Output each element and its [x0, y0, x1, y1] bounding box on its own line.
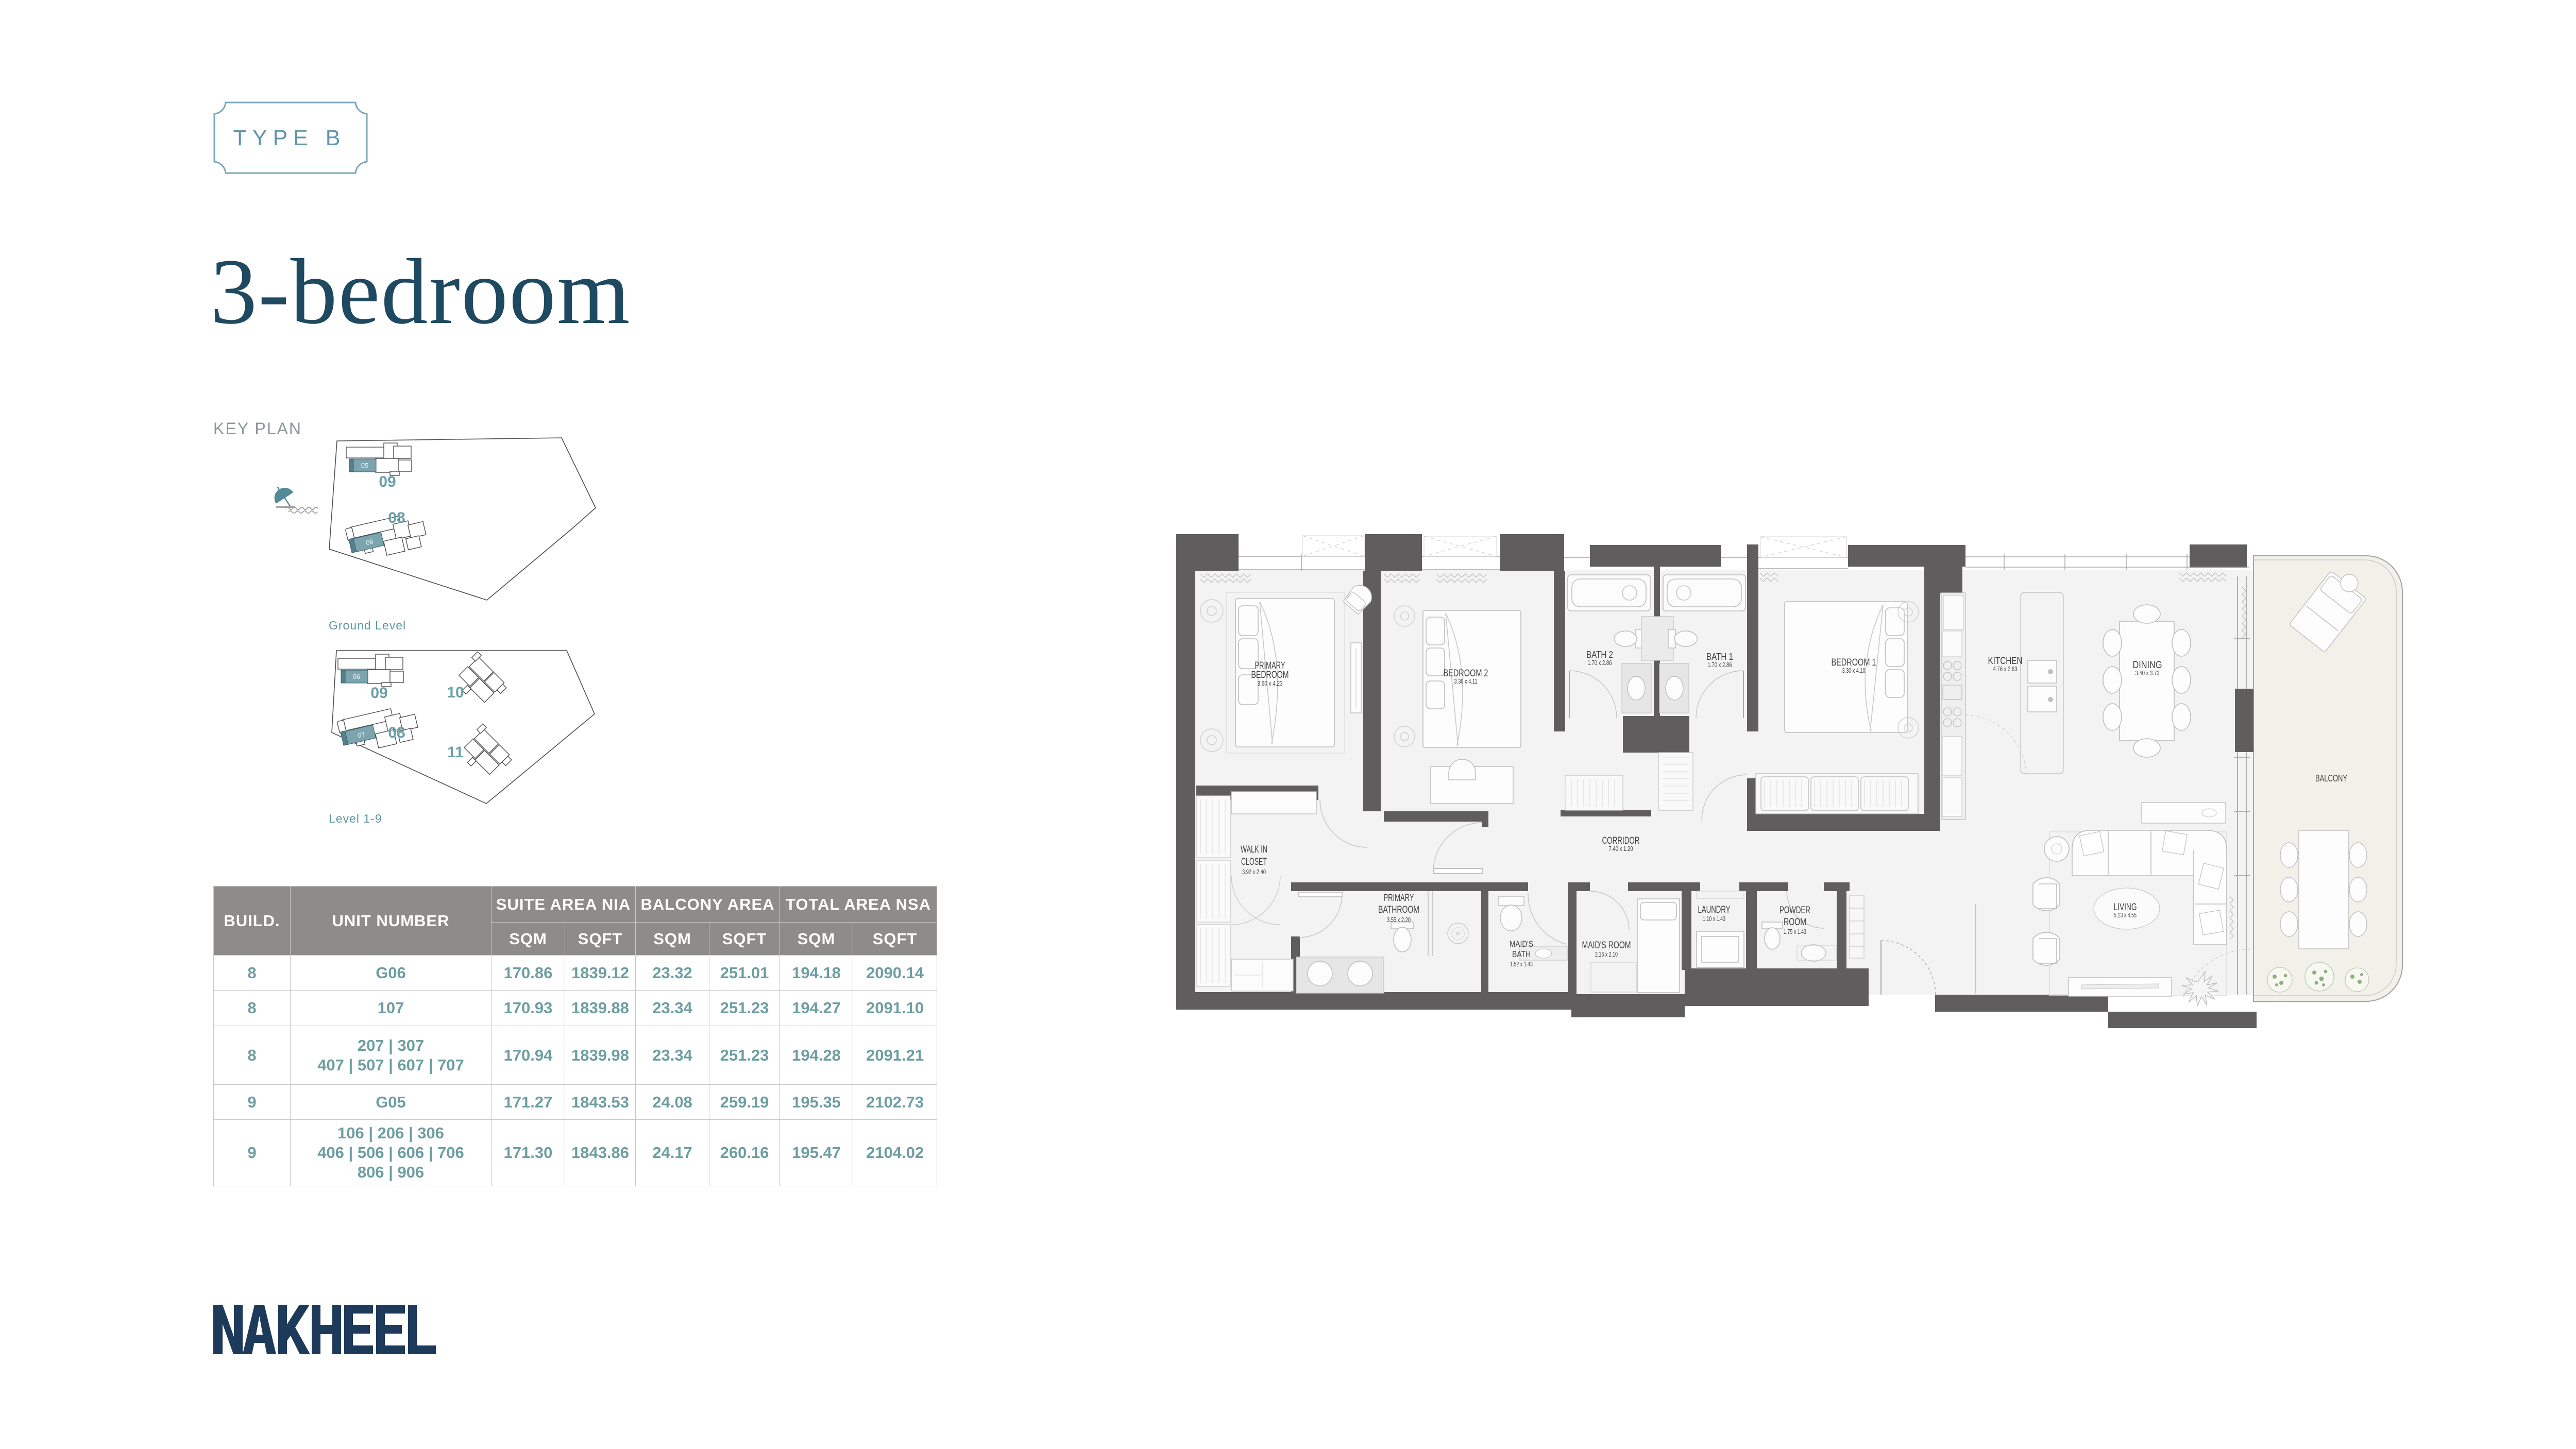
svg-text:1.10 x 1.43: 1.10 x 1.43 [1703, 915, 1725, 923]
svg-text:LIVING: LIVING [2114, 902, 2137, 913]
svg-text:BATHROOM: BATHROOM [1378, 905, 1419, 915]
svg-text:4.76 x 2.63: 4.76 x 2.63 [1993, 666, 2018, 673]
svg-text:1.70 x 2.86: 1.70 x 2.86 [1588, 659, 1612, 667]
svg-text:05: 05 [361, 462, 368, 469]
svg-text:11: 11 [447, 744, 464, 761]
svg-text:BATH 1: BATH 1 [1706, 652, 1733, 662]
svg-text:MAID'S: MAID'S [1510, 939, 1533, 949]
svg-text:3.30 x 4.11: 3.30 x 4.11 [1454, 678, 1478, 685]
svg-text:BALCONY: BALCONY [2315, 773, 2347, 783]
svg-text:3.55 x 2.20: 3.55 x 2.20 [1387, 916, 1411, 924]
svg-text:CORRIDOR: CORRIDOR [1602, 836, 1640, 846]
svg-text:2.16 x 2.10: 2.16 x 2.10 [1595, 951, 1618, 958]
svg-text:BEDROOM 2: BEDROOM 2 [1444, 668, 1488, 679]
svg-text:10: 10 [447, 684, 464, 701]
svg-text:09: 09 [370, 685, 387, 702]
svg-text:CLOSET: CLOSET [1241, 857, 1267, 867]
svg-text:DINING: DINING [2133, 660, 2162, 671]
svg-text:1.52 x 1.43: 1.52 x 1.43 [1510, 961, 1533, 968]
svg-text:3.92 x 2.40: 3.92 x 2.40 [1242, 868, 1266, 876]
svg-text:08: 08 [388, 724, 405, 741]
svg-text:BATH 2: BATH 2 [1586, 650, 1613, 660]
svg-text:7.40 x 1.20: 7.40 x 1.20 [1609, 845, 1633, 853]
svg-text:POWDER: POWDER [1780, 905, 1810, 916]
svg-text:WALK IN: WALK IN [1241, 844, 1267, 855]
svg-text:BEDROOM: BEDROOM [1251, 670, 1289, 680]
svg-text:5.13 x 4.55: 5.13 x 4.55 [2114, 912, 2137, 919]
svg-text:LAUNDRY: LAUNDRY [1698, 905, 1731, 915]
svg-text:06: 06 [353, 673, 360, 680]
svg-text:09: 09 [379, 473, 396, 490]
svg-text:3.40 x 3.73: 3.40 x 3.73 [2136, 670, 2160, 677]
svg-text:08: 08 [388, 509, 405, 526]
svg-text:TYPE B: TYPE B [233, 126, 346, 150]
svg-text:1.70 x 2.86: 1.70 x 2.86 [1708, 661, 1732, 669]
svg-text:ROOM: ROOM [1784, 917, 1806, 928]
svg-text:1.75 x 1.43: 1.75 x 1.43 [1784, 928, 1806, 935]
svg-text:MAID'S ROOM: MAID'S ROOM [1582, 940, 1631, 951]
svg-text:3.30 x 4.10: 3.30 x 4.10 [1842, 667, 1866, 674]
svg-text:KITCHEN: KITCHEN [1988, 656, 2023, 667]
svg-text:PRIMARY: PRIMARY [1384, 893, 1414, 904]
svg-text:Level 1-9: Level 1-9 [329, 812, 382, 825]
svg-text:Ground Level: Ground Level [329, 619, 406, 632]
svg-text:BEDROOM 1: BEDROOM 1 [1832, 657, 1876, 668]
svg-text:BATH: BATH [1512, 949, 1531, 959]
svg-text:3.60 x 4.23: 3.60 x 4.23 [1258, 680, 1283, 687]
